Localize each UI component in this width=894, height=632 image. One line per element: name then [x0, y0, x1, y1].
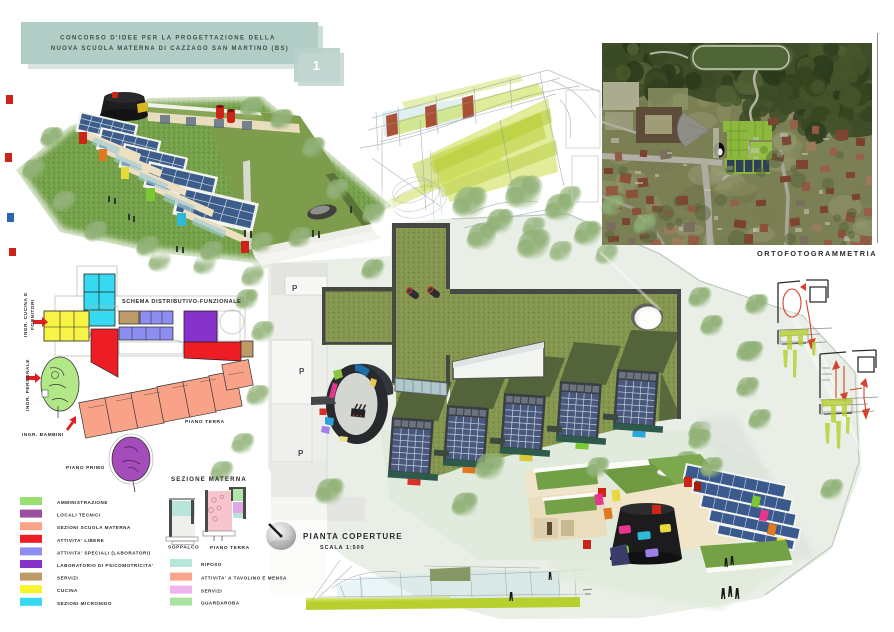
svg-text:RIPOSO: RIPOSO	[201, 562, 222, 567]
svg-text:INGR. CUCINA E: INGR. CUCINA E	[23, 292, 29, 337]
svg-text:PIANO PRIMO: PIANO PRIMO	[66, 465, 105, 471]
svg-text:SCALA 1:500: SCALA 1:500	[320, 545, 365, 551]
svg-text:PIANO TERRA: PIANO TERRA	[185, 419, 225, 425]
svg-text:INGR. PERSONALE: INGR. PERSONALE	[25, 359, 31, 411]
svg-text:CONCORSO D'IDEE PER LA PROGETT: CONCORSO D'IDEE PER LA PROGETTAZIONE DEL…	[60, 36, 276, 42]
svg-text:SCHEMA DISTRIBUTIVO-FUNZIONALE: SCHEMA DISTRIBUTIVO-FUNZIONALE	[122, 299, 241, 305]
svg-text:P: P	[298, 449, 304, 458]
svg-text:ATTIVITA' SPECIALI (LABORATORI: ATTIVITA' SPECIALI (LABORATORI)	[57, 550, 151, 555]
svg-text:P: P	[299, 367, 305, 376]
svg-text:FORNITORI: FORNITORI	[30, 299, 36, 330]
svg-text:LABORATORIO DI PSICOMOTRICITA': LABORATORIO DI PSICOMOTRICITA'	[57, 563, 153, 568]
svg-text:1: 1	[313, 58, 320, 73]
svg-text:LOCALI TECNICI: LOCALI TECNICI	[57, 513, 101, 518]
svg-text:AMMINISTRAZIONE: AMMINISTRAZIONE	[57, 500, 108, 505]
svg-text:ORTOFOTOGRAMMETRIA: ORTOFOTOGRAMMETRIA	[757, 249, 877, 258]
svg-text:GUARDAROBA: GUARDAROBA	[201, 601, 240, 606]
svg-text:PIANO TERRA: PIANO TERRA	[210, 545, 250, 551]
svg-text:SERVIZI: SERVIZI	[201, 589, 222, 594]
svg-text:SEZIONE MATERNA: SEZIONE MATERNA	[171, 476, 247, 483]
svg-text:INGR. BAMBINI: INGR. BAMBINI	[22, 432, 64, 438]
svg-text:CUCINA: CUCINA	[57, 588, 78, 593]
svg-text:ATTIVITA' LIBERE: ATTIVITA' LIBERE	[57, 538, 104, 543]
svg-text:SOPPALCO: SOPPALCO	[168, 545, 199, 551]
svg-text:SERVIZI: SERVIZI	[57, 576, 78, 581]
svg-text:ATTIVITA' A TAVOLINO E MENSA: ATTIVITA' A TAVOLINO E MENSA	[201, 576, 287, 581]
svg-text:PIANTA COPERTURE: PIANTA COPERTURE	[303, 532, 403, 541]
svg-text:SEZIONI MICRONIDO: SEZIONI MICRONIDO	[57, 601, 112, 606]
svg-text:NUOVA SCUOLA MATERNA DI CAZZAG: NUOVA SCUOLA MATERNA DI CAZZAGO SAN MART…	[51, 46, 289, 52]
svg-text:P: P	[292, 284, 298, 293]
svg-text:SEZIONI SCUOLA MATERNA: SEZIONI SCUOLA MATERNA	[57, 525, 131, 530]
